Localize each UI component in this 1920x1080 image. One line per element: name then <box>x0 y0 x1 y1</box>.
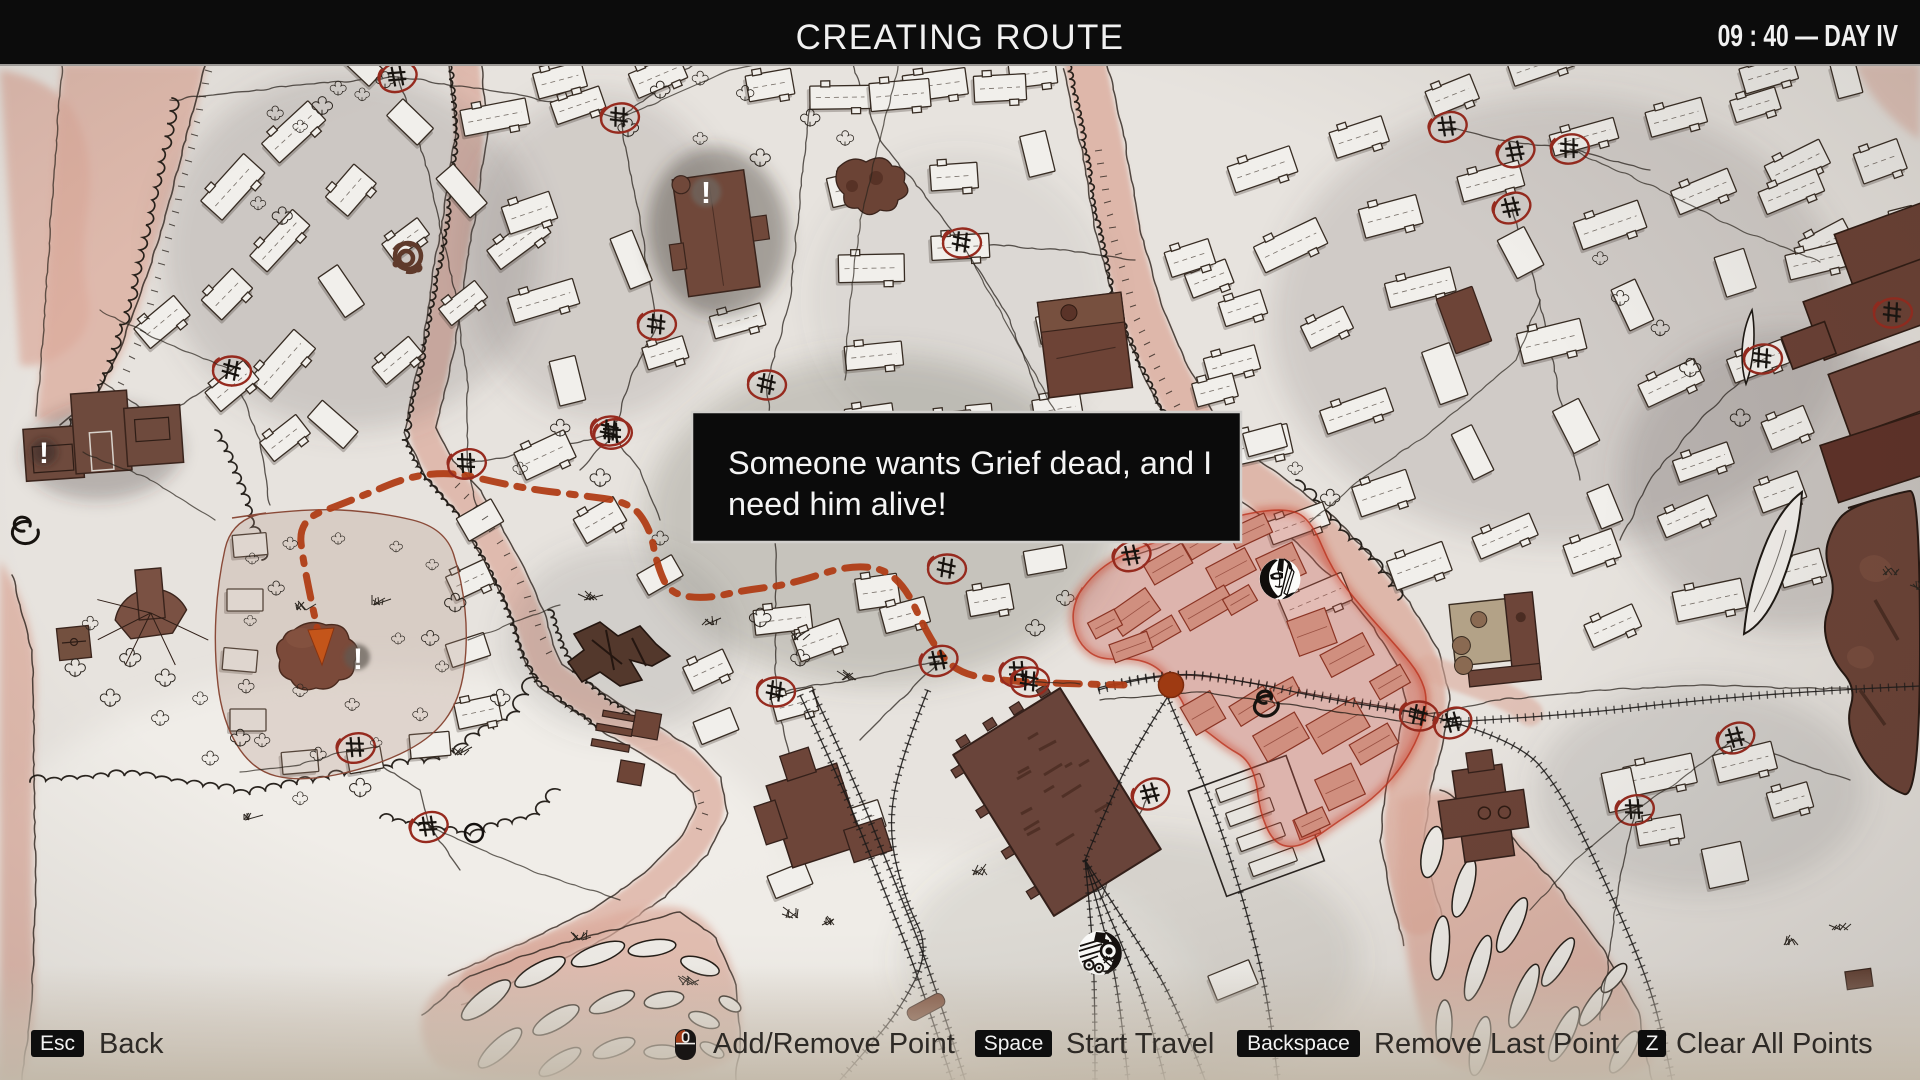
svg-text:Backspace: Backspace <box>1247 1032 1350 1055</box>
svg-text:Esc: Esc <box>40 1032 75 1055</box>
svg-text:Start Travel: Start Travel <box>1066 1028 1214 1060</box>
svg-text:Add/Remove Point: Add/Remove Point <box>713 1028 955 1060</box>
svg-text:09 : 40 — DAY IV: 09 : 40 — DAY IV <box>1718 19 1898 53</box>
svg-text:Back: Back <box>99 1028 164 1060</box>
svg-text:Clear All Points: Clear All Points <box>1676 1028 1873 1060</box>
svg-text:Someone wants Grief dead, and: Someone wants Grief dead, and I <box>728 445 1212 481</box>
svg-text:Z: Z <box>1646 1032 1659 1055</box>
svg-text:Remove Last Point: Remove Last Point <box>1374 1028 1619 1060</box>
svg-text:need him alive!: need him alive! <box>728 486 947 522</box>
svg-text:Space: Space <box>984 1032 1044 1055</box>
svg-text:CREATING ROUTE: CREATING ROUTE <box>796 18 1125 57</box>
